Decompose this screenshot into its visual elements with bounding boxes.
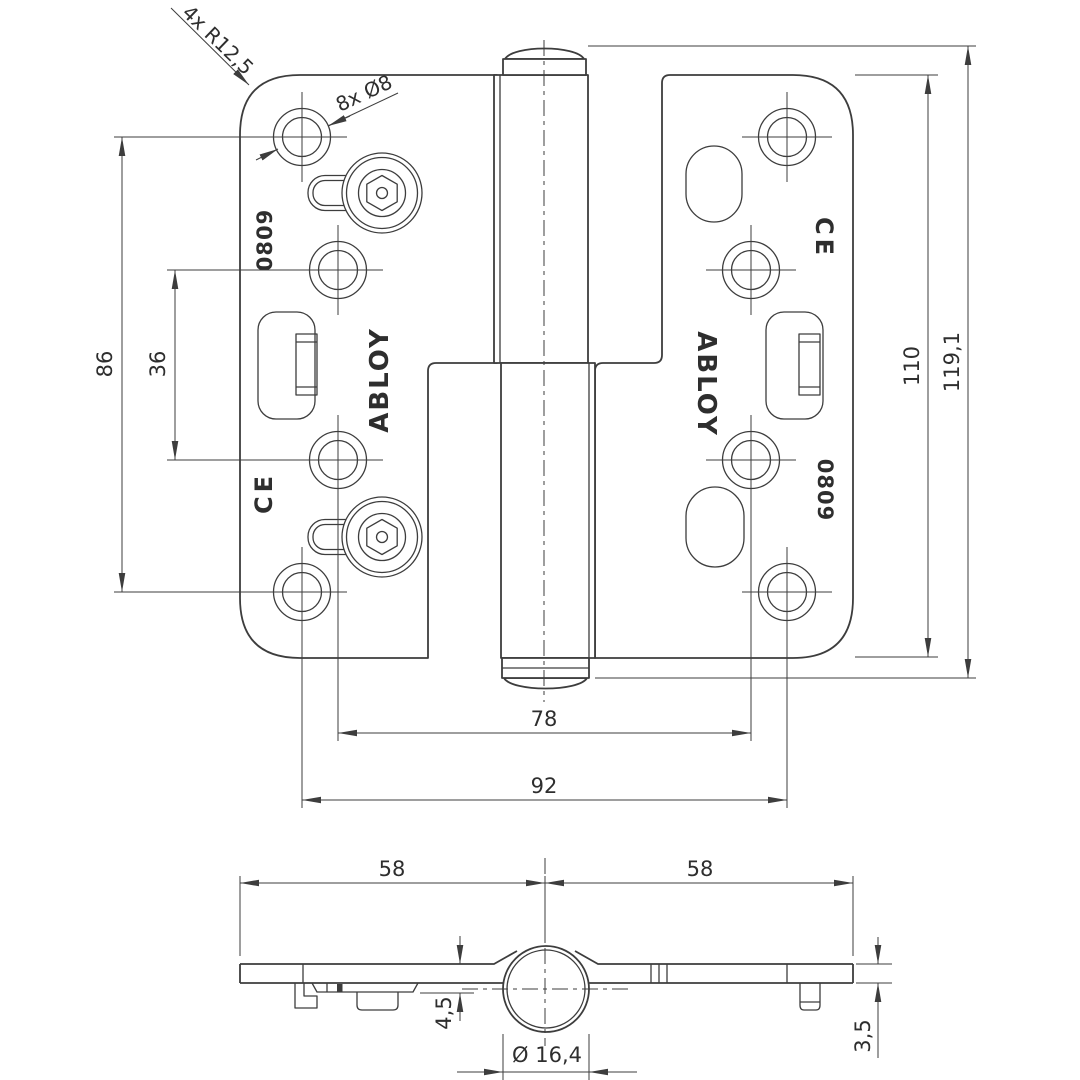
right-tab xyxy=(800,983,820,1010)
section-plate-left-top xyxy=(240,951,517,964)
dim-86: 86 xyxy=(93,351,117,378)
dim-36: 36 xyxy=(146,351,170,378)
dim-3-5: 3,5 xyxy=(851,1019,875,1052)
flat-block xyxy=(312,983,418,992)
section-view xyxy=(240,858,853,1046)
ce-mark-left: CE xyxy=(250,472,278,514)
dim-16-4: Ø 16,4 xyxy=(512,1043,582,1067)
dim-78: 78 xyxy=(531,707,558,731)
barrel-upper xyxy=(494,75,588,363)
radius-callout: 4x R12,5 xyxy=(178,0,259,79)
brand-text-left: ABLOY xyxy=(365,327,395,433)
dim-110: 110 xyxy=(900,346,924,386)
ce-mark-right: CE xyxy=(810,217,838,259)
dim-4-5: 4,5 xyxy=(432,996,456,1029)
right-leaf-outline xyxy=(595,75,853,658)
technical-drawing: ABLOY ABLOY 0809 0809 CE CE 4x R12,5 8x … xyxy=(0,0,1080,1080)
block-mark xyxy=(337,984,343,992)
dim-58-right: 58 xyxy=(687,857,714,881)
brand-text-right: ABLOY xyxy=(691,331,721,437)
plan-view: ABLOY ABLOY 0809 0809 CE CE xyxy=(240,40,853,702)
model-text-left: 0809 xyxy=(253,209,277,271)
barrel-bottom-cap-dome xyxy=(504,678,587,689)
model-text-right: 0809 xyxy=(813,459,837,521)
barrel-lower xyxy=(501,363,595,658)
dim-92: 92 xyxy=(531,774,558,798)
dim-119-1: 119,1 xyxy=(940,332,964,392)
dim-58-left: 58 xyxy=(379,857,406,881)
section-plate-right-top xyxy=(575,951,853,964)
hinge-drawing-svg: ABLOY ABLOY 0809 0809 CE CE 4x R12,5 8x … xyxy=(0,0,1080,1080)
lower-block xyxy=(357,992,398,1010)
